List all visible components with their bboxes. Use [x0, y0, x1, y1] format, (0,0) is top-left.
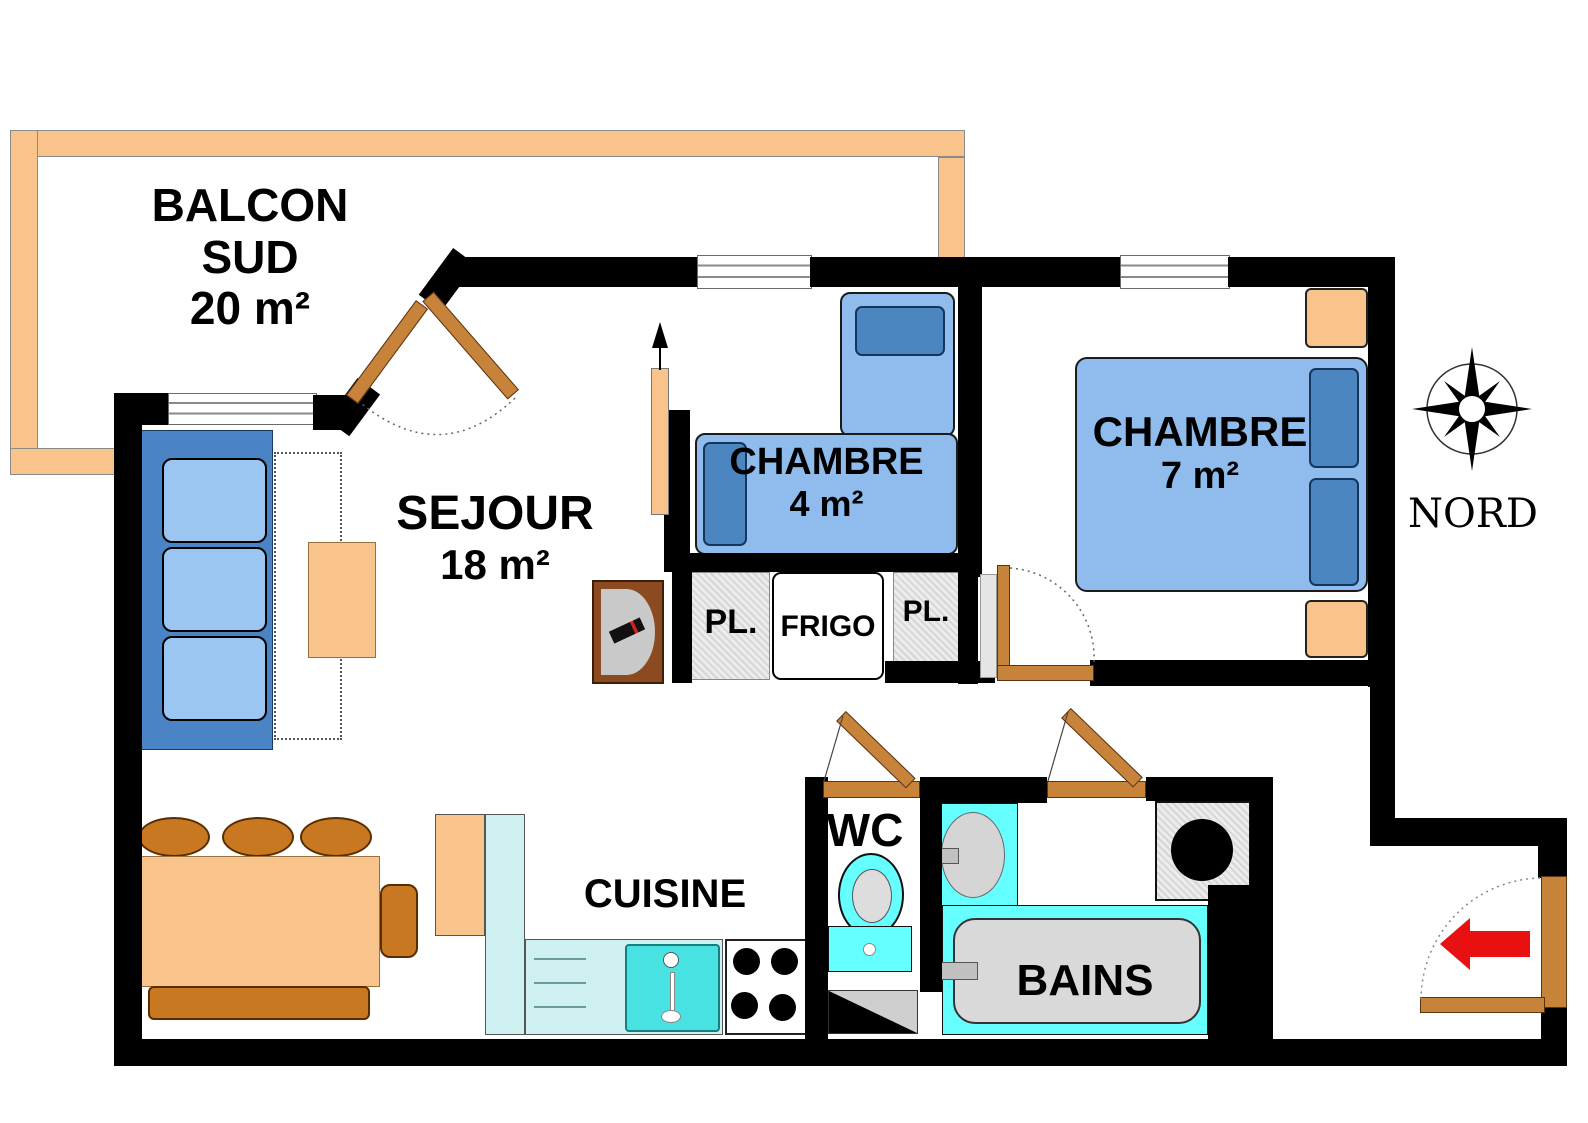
entry-arrow-head	[1440, 918, 1470, 970]
wall	[1208, 885, 1250, 1039]
kitchen-counter-column	[485, 814, 525, 1035]
drawer-line	[534, 1006, 586, 1008]
drawer-line	[534, 958, 586, 960]
bains-label: BAINS	[1000, 956, 1170, 1005]
wall	[672, 553, 692, 683]
balcony-label-orientation: SUD	[120, 232, 380, 284]
balcony-label-name: BALCON	[120, 180, 380, 232]
door-direction-arrow-stem	[659, 346, 661, 370]
wall	[958, 287, 982, 577]
wc-door-leaf	[836, 711, 916, 788]
closet-left: PL.	[690, 572, 770, 680]
faucet-base	[661, 1010, 681, 1023]
chambre7-label-area: 7 m²	[1080, 455, 1320, 498]
chambre4-label-name: CHAMBRE	[695, 441, 958, 484]
chambre7-label: CHAMBRE 7 m²	[1080, 408, 1320, 498]
stool	[300, 817, 372, 857]
drawer-line	[534, 982, 586, 984]
wall	[920, 777, 942, 992]
balcony-rail-left	[10, 130, 38, 475]
burner	[733, 948, 760, 975]
washing-machine-drum	[1171, 819, 1233, 881]
compass-rose-icon	[1410, 345, 1534, 477]
nightstand	[1305, 600, 1368, 658]
wall	[805, 777, 823, 803]
cuisine-label: CUISINE	[565, 872, 765, 917]
wall	[805, 777, 828, 1039]
wall	[114, 1039, 1567, 1066]
toilet-bowl-inner	[852, 869, 892, 923]
stool	[222, 817, 294, 857]
chambre4-label-area: 4 m²	[695, 484, 958, 524]
entry-arrow-shaft	[1470, 931, 1530, 957]
wall	[810, 257, 1120, 287]
faucet-knob	[663, 952, 679, 968]
balcony-rail-right	[938, 157, 965, 260]
stool	[138, 817, 210, 857]
chambre4-door-marker	[651, 368, 669, 515]
tv-unit	[592, 580, 664, 684]
pillow	[855, 306, 945, 356]
wall	[1090, 660, 1395, 686]
balcony-door-leaf	[422, 292, 519, 400]
wall	[1370, 685, 1395, 846]
burner	[731, 992, 758, 1019]
bathtub-faucet	[938, 962, 978, 980]
wall	[1368, 257, 1395, 687]
burner	[771, 948, 798, 975]
wall	[1538, 846, 1567, 878]
wall	[448, 257, 697, 287]
sofa-cushion	[162, 458, 267, 543]
sejour-label-area: 18 m²	[365, 541, 625, 588]
burner	[769, 994, 796, 1021]
sejour-label: SEJOUR 18 m²	[365, 487, 625, 588]
balcony-door-arc	[362, 398, 515, 435]
toilet-tank	[828, 926, 912, 972]
chambre7-door-leaf	[997, 565, 1010, 669]
chambre7-label-name: CHAMBRE	[1080, 408, 1320, 455]
nightstand	[1305, 288, 1368, 348]
water-heater-shade	[829, 991, 917, 1033]
wall	[885, 661, 995, 683]
stove	[725, 939, 807, 1035]
wall	[114, 393, 170, 425]
window-sejour	[168, 393, 317, 425]
balcony-rail-bottom	[10, 448, 118, 475]
closet-left-label: PL.	[691, 603, 771, 641]
water-heater	[828, 990, 918, 1034]
sofa-cushion	[162, 547, 267, 632]
wall	[1250, 777, 1273, 1039]
dining-table	[137, 856, 380, 987]
wall	[1393, 818, 1567, 846]
floor-plan: BALCON SUD 20 m² SEJOUR 18 m² CUISINE	[0, 0, 1588, 1123]
chair	[380, 884, 418, 958]
faucet-stem	[670, 972, 675, 1012]
bains-door-leaf	[1061, 708, 1143, 788]
closet-right-label: PL.	[894, 595, 958, 629]
balcony-label: BALCON SUD 20 m²	[120, 180, 380, 335]
balcony-label-area: 20 m²	[120, 283, 380, 335]
bench	[148, 986, 370, 1020]
tank-button	[863, 943, 876, 956]
closet-right: PL.	[893, 572, 960, 664]
kitchen-sink	[625, 944, 720, 1032]
window-top-2	[1120, 255, 1230, 289]
door-direction-arrow-head	[652, 322, 668, 348]
sofa-cushion	[162, 636, 267, 721]
wall	[678, 553, 980, 572]
chambre7-door-sill	[997, 665, 1094, 681]
fridge-label: FRIGO	[774, 610, 882, 644]
entry-door-jamb	[1541, 876, 1567, 1008]
balcony-rail-top	[10, 130, 965, 157]
chambre7-doorway	[980, 574, 997, 678]
kitchen-tall-unit	[435, 814, 485, 936]
compass-label: NORD	[1408, 492, 1538, 537]
fridge: FRIGO	[772, 572, 884, 680]
window-top-1	[697, 255, 812, 289]
entry-door-leaf	[1420, 997, 1545, 1013]
chambre4-label: CHAMBRE 4 m²	[695, 441, 958, 524]
sejour-label-name: SEJOUR	[365, 487, 625, 541]
wall	[114, 393, 142, 1066]
